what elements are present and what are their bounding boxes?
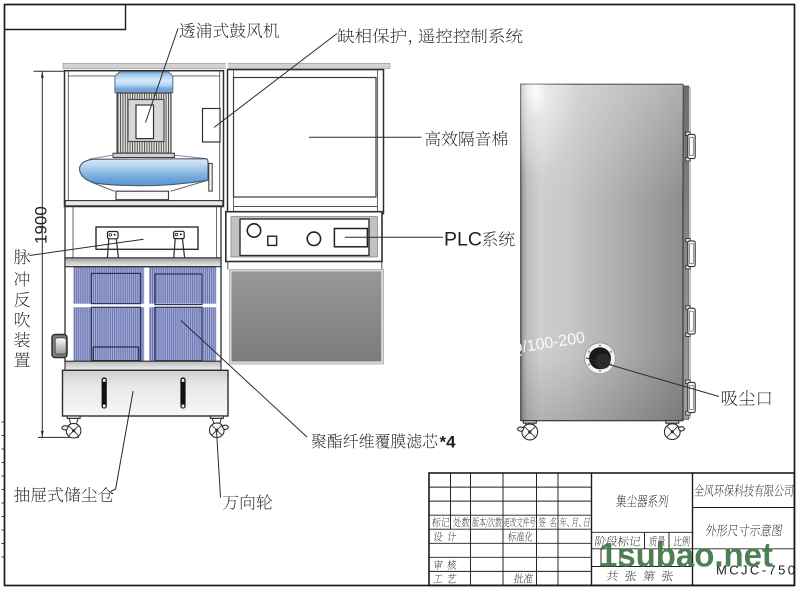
svg-text:1subao.net: 1subao.net	[599, 537, 773, 575]
svg-text:1900: 1900	[32, 206, 51, 244]
svg-text:PLC: PLC	[444, 228, 482, 250]
svg-text:*4: *4	[440, 433, 457, 452]
